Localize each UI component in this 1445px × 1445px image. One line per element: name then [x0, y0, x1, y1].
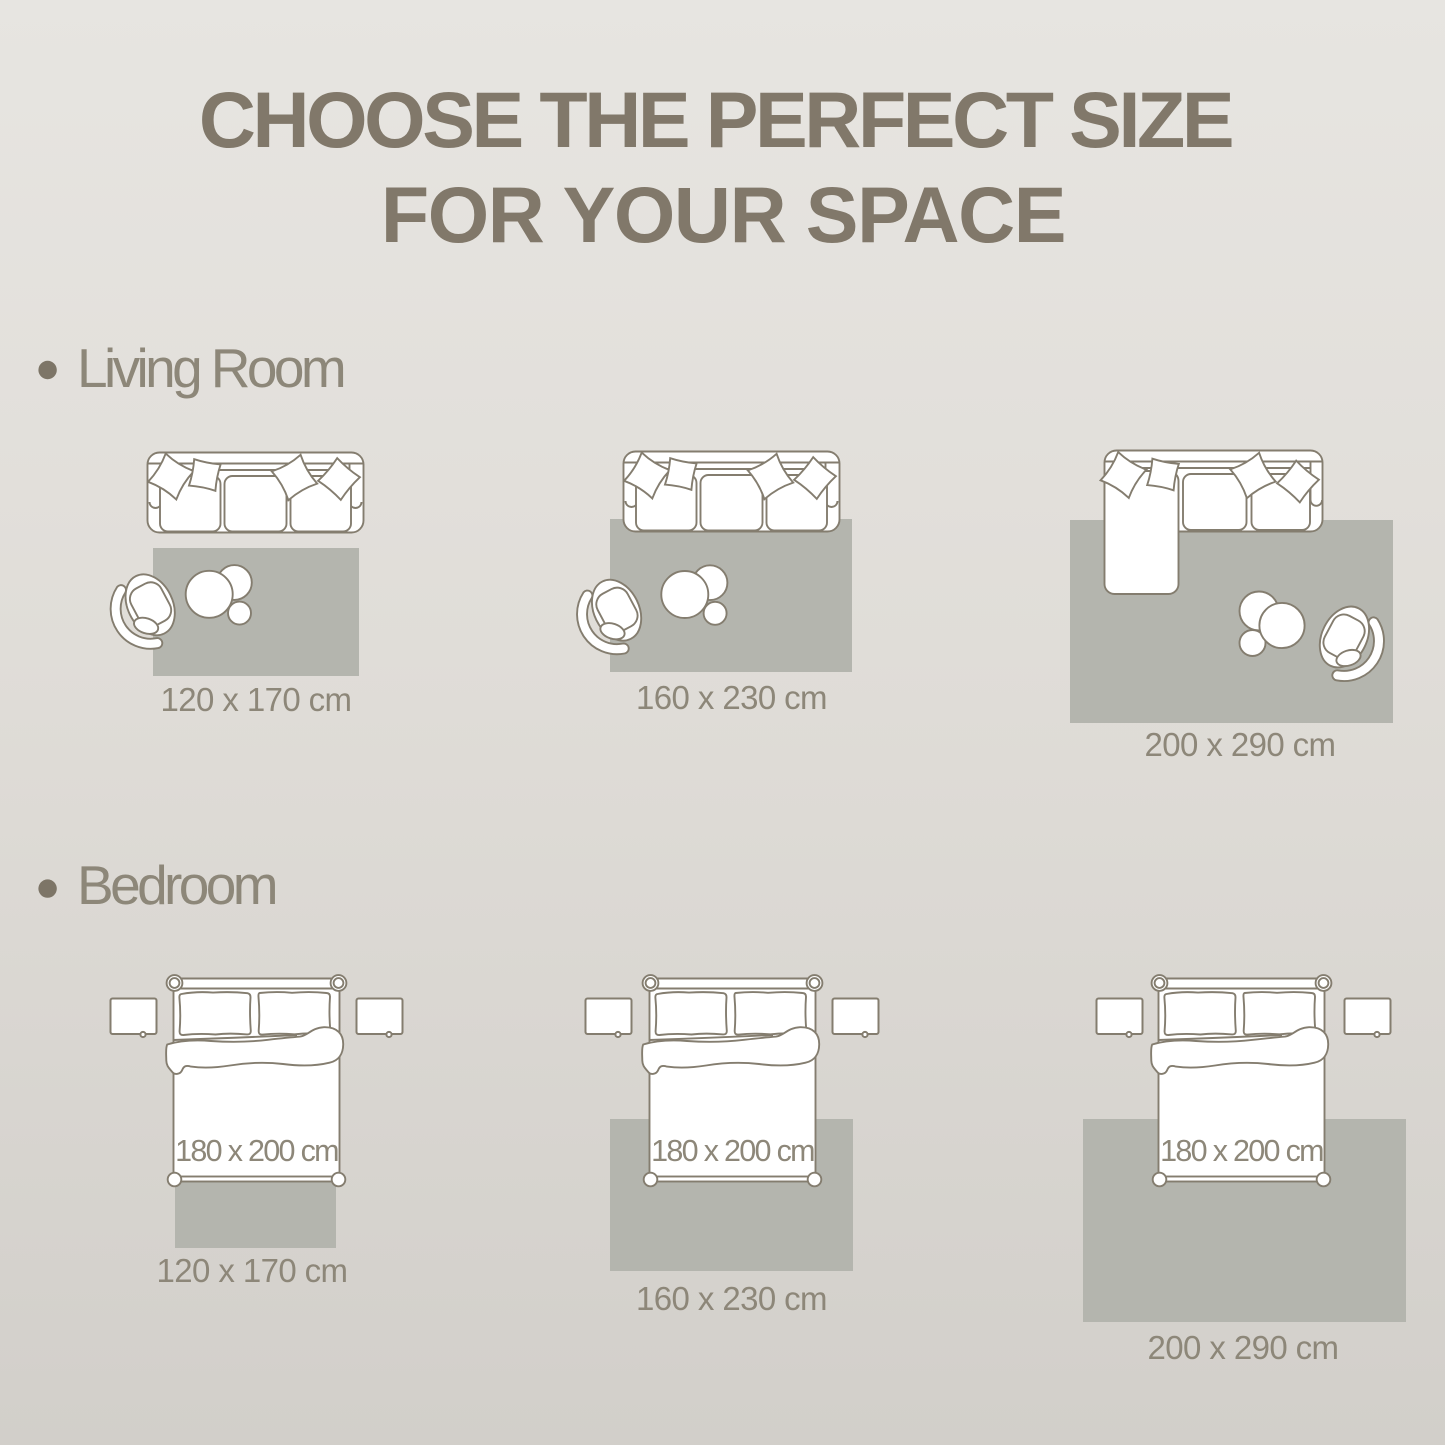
svg-text:FOR YOUR SPACE: FOR YOUR SPACE [381, 170, 1065, 259]
svg-text:120 x 170 cm: 120 x 170 cm [161, 681, 352, 718]
svg-text:160 x 230 cm: 160 x 230 cm [636, 1280, 827, 1317]
svg-text:Bedroom: Bedroom [77, 854, 276, 916]
svg-text:Living Room: Living Room [77, 337, 344, 399]
svg-text:CHOOSE THE PERFECT SIZE: CHOOSE THE PERFECT SIZE [199, 75, 1232, 164]
svg-text:120 x 170 cm: 120 x 170 cm [157, 1252, 348, 1289]
svg-text:160 x 230 cm: 160 x 230 cm [636, 679, 827, 716]
svg-text:200 x 290 cm: 200 x 290 cm [1145, 726, 1336, 763]
svg-text:200 x 290 cm: 200 x 290 cm [1148, 1329, 1339, 1366]
